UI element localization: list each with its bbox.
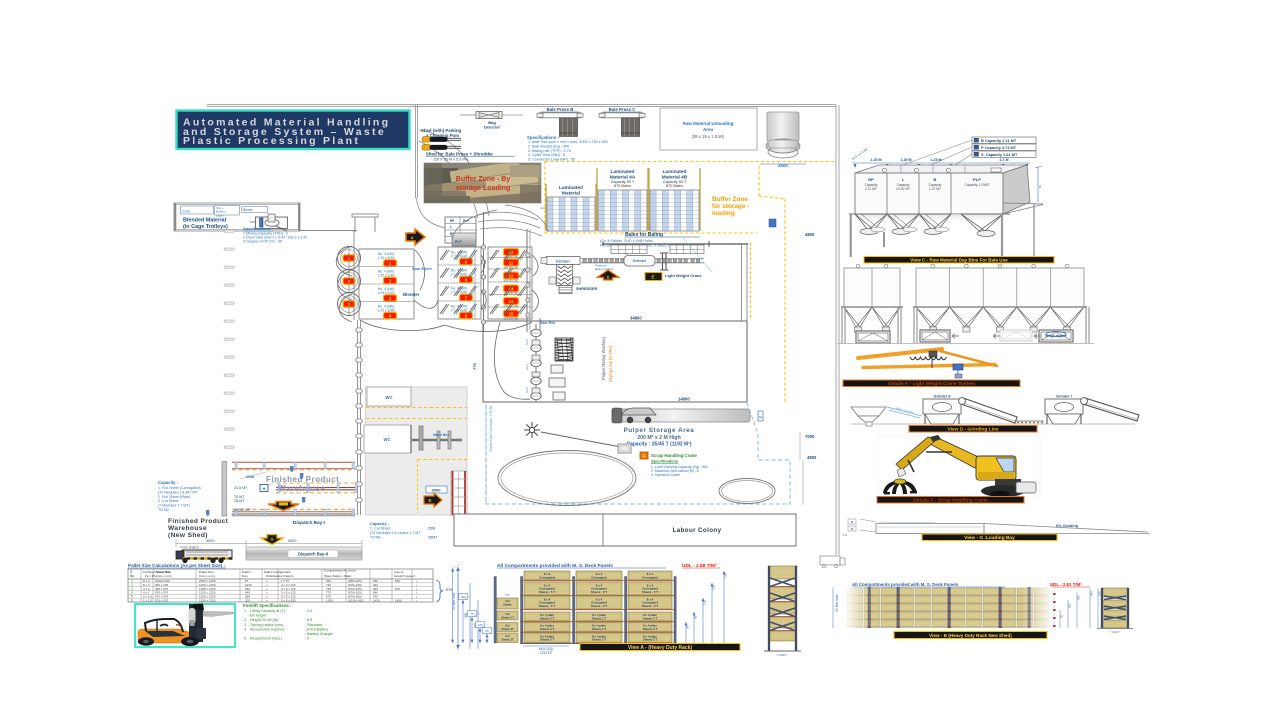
svg-text:2.: 2. xyxy=(244,618,247,622)
svg-text:34800: 34800 xyxy=(630,316,642,321)
svg-text:(1015+165): (1015+165) xyxy=(348,598,363,602)
svg-text:PLP: PLP xyxy=(455,240,462,244)
svg-text:Sheet Out Conveyor 100 M: Sheet Out Conveyor 100 M xyxy=(489,406,493,452)
svg-text:Sheets - 5 T: Sheets - 5 T xyxy=(591,590,607,594)
svg-text:for storage -: for storage - xyxy=(712,203,749,210)
svg-text:11: 11 xyxy=(509,260,514,265)
svg-text:Turning radius (mm): Turning radius (mm) xyxy=(250,623,283,627)
svg-text:All Compartments provided with: All Compartments provided with M. S. Dec… xyxy=(852,582,959,587)
svg-text:350: 350 xyxy=(1076,595,1080,600)
svg-text:Core: Core xyxy=(182,210,190,214)
svg-text:View C - Raw Material Day Bins: View C - Raw Material Day Bins For Bale … xyxy=(910,257,1008,262)
svg-text:Corrugated: Corrugated xyxy=(642,575,658,579)
svg-text:1.2: 1.2 xyxy=(843,533,848,537)
svg-text:Sheets 2T: Sheets 2T xyxy=(501,627,514,631)
svg-text:storage Loading: storage Loading xyxy=(456,185,510,192)
svg-text:Material: Material xyxy=(562,191,580,197)
svg-text:Detector: Detector xyxy=(484,125,501,130)
svg-text:775: 775 xyxy=(472,363,477,370)
svg-text:Sheets - 5 T: Sheets - 5 T xyxy=(591,604,607,608)
svg-text:PLP: PLP xyxy=(973,177,981,182)
svg-text:Lifting Capacity at (T): Lifting Capacity at (T) xyxy=(250,609,285,613)
svg-text:5 x 5 x 203: 5 x 5 x 203 xyxy=(281,598,296,602)
svg-text:75: 75 xyxy=(471,612,475,616)
svg-text:View - B (Heavy Duty Rack New: View - B (Heavy Duty Rack New Shed) xyxy=(929,633,1012,638)
svg-text:50 feet side: 50 feet side xyxy=(835,594,839,612)
svg-text:195: 195 xyxy=(712,585,716,590)
svg-text:: 5: : 5 xyxy=(305,637,309,641)
svg-text:Sheet Stack + Pallet: Sheet Stack + Pallet xyxy=(324,574,351,578)
svg-text:19.20 MT: 19.20 MT xyxy=(896,187,910,191)
svg-text:1.25 M: 1.25 M xyxy=(931,158,942,162)
svg-text:kW 80 (M): kW 80 (M) xyxy=(504,279,519,283)
svg-text:4500: 4500 xyxy=(206,539,214,543)
svg-text:: 5.5: : 5.5 xyxy=(305,618,312,622)
svg-text:FL x FS: FL x FS xyxy=(145,574,156,578)
svg-text:Name Box: Name Box xyxy=(433,433,449,437)
svg-text:Details F - Scrap Handling Cra: Details F - Scrap Handling Crane xyxy=(913,497,988,503)
svg-text:Sheets 2 T: Sheets 2 T xyxy=(643,616,658,620)
svg-text:Dispatch Bay-II: Dispatch Bay-II xyxy=(298,552,328,557)
svg-text:View - G :Loading Bay: View - G :Loading Bay xyxy=(964,535,1015,541)
svg-text:Sheets 2 T: Sheets 2 T xyxy=(592,616,607,620)
svg-text:Grinder I: Grinder I xyxy=(1056,395,1072,399)
svg-text:Buffer Zone: Buffer Zone xyxy=(712,196,748,203)
svg-text:D: D xyxy=(607,275,610,279)
svg-text:RP: RP xyxy=(868,177,874,182)
svg-text:Warehouse: Warehouse xyxy=(278,484,325,493)
svg-text:4800: 4800 xyxy=(807,455,817,460)
svg-text:Details K - Light Weight Crane: Details K - Light Weight Crane System xyxy=(888,381,975,387)
svg-text:Capacity 1.19MT: Capacity 1.19MT xyxy=(965,183,990,187)
svg-text:(in Cage Trolleys): (in Cage Trolleys) xyxy=(183,224,228,230)
svg-text:Scrap Handling Crane: Scrap Handling Crane xyxy=(651,453,697,458)
svg-text:Laminated: Laminated xyxy=(559,185,583,191)
svg-text:400: 400 xyxy=(1089,591,1093,596)
svg-text:Sheets: Sheets xyxy=(503,602,512,606)
svg-text:2700 FC: 2700 FC xyxy=(540,651,553,655)
svg-text:5.: 5. xyxy=(244,637,247,641)
svg-text:Specifications :: Specifications : xyxy=(243,226,273,231)
svg-text:Pulper Storage Area: Pulper Storage Area xyxy=(624,427,695,434)
svg-text:A: A xyxy=(411,235,414,240)
svg-text:Labour Colony: Labour Colony xyxy=(673,527,722,534)
svg-text:Dispatch Bay-I: Dispatch Bay-I xyxy=(293,520,325,525)
svg-text:2.11 MT: 2.11 MT xyxy=(865,187,877,191)
svg-text:loading: loading xyxy=(712,210,735,217)
svg-text:Nos.: Nos. xyxy=(242,574,249,578)
svg-text:1.: 1. xyxy=(244,609,247,613)
svg-text:G: G xyxy=(271,538,274,542)
svg-text:Binder: Binder xyxy=(243,208,254,212)
svg-text:Pulper Rating Washing: Pulper Rating Washing xyxy=(601,337,606,380)
svg-text:35MT: 35MT xyxy=(428,536,438,540)
svg-text:: Standard: : Standard xyxy=(305,623,322,627)
svg-text:M: M xyxy=(759,416,762,420)
svg-text:Sheets 2 T: Sheets 2 T xyxy=(592,627,607,631)
svg-text:Cut: Cut xyxy=(505,624,509,628)
svg-text:Cut: Cut xyxy=(505,612,509,616)
svg-text:2. Full Sheet (Plain): 2. Full Sheet (Plain) xyxy=(158,495,190,499)
svg-text:Blender: Blender xyxy=(403,292,420,297)
svg-text:No.4: No.4 xyxy=(525,387,529,393)
svg-text:TOTAL: TOTAL xyxy=(370,536,382,540)
svg-text:70 MT: 70 MT xyxy=(234,495,245,499)
svg-text:P Capacity 3.74 MT: P Capacity 3.74 MT xyxy=(981,145,1017,150)
svg-text:No.4: No.4 xyxy=(525,339,529,345)
svg-text:WC: WC xyxy=(384,437,391,442)
svg-text:240: 240 xyxy=(1097,591,1101,596)
svg-text:Laminated: Laminated xyxy=(611,169,635,175)
svg-text:870 Bales: 870 Bales xyxy=(614,184,631,188)
svg-text:16 MT: 16 MT xyxy=(234,499,245,503)
svg-text:Sheets - 5 T: Sheets - 5 T xyxy=(539,590,555,594)
svg-text:Cut: Cut xyxy=(505,634,509,638)
svg-text:Drying Line [5 TPH]: Drying Line [5 TPH] xyxy=(608,346,613,382)
svg-text:200 M² x 2 M High: 200 M² x 2 M High xyxy=(637,435,681,441)
svg-text:Actual Proposed: Actual Proposed xyxy=(394,574,415,578)
svg-text:Specifications: Specifications xyxy=(651,459,679,464)
svg-text:S. Capacity 1.01 MT: S. Capacity 1.01 MT xyxy=(981,152,1018,157)
svg-text:(mm x mm): (mm x mm) xyxy=(156,574,172,578)
svg-text:650: 650 xyxy=(395,579,400,583)
svg-text:4.: 4. xyxy=(244,627,247,631)
svg-text:275: 275 xyxy=(724,573,728,578)
svg-text:570 x 570: 570 x 570 xyxy=(155,598,169,602)
svg-text:3. Baling rate (TPH): 3. Baling rate (TPH) : 0.75 xyxy=(528,149,571,153)
svg-text:1430: 1430 xyxy=(373,598,380,602)
svg-text:120: 120 xyxy=(478,623,483,627)
svg-text:B: B xyxy=(934,177,937,182)
svg-text:Sheets - 5 T: Sheets - 5 T xyxy=(642,590,658,594)
svg-text:Shed for Bale Press + Shredd: Shed for Bale Press + Shredder xyxy=(426,151,494,156)
svg-text:No.: No. xyxy=(130,574,135,578)
svg-text:E: E xyxy=(428,498,431,503)
svg-text:15: 15 xyxy=(509,311,514,316)
svg-text:7 1110 7: 7 1110 7 xyxy=(1110,630,1121,634)
svg-text:Sam Mixer: Sam Mixer xyxy=(412,266,432,271)
svg-text:1430: 1430 xyxy=(395,598,402,602)
svg-text:Capacity : 35/45 T (1192 M³): Capacity : 35/45 T (1192 M³) xyxy=(626,442,691,448)
svg-text:Grinder: Grinder xyxy=(633,259,647,263)
svg-text:(38 x 19 x 1.5 M²): (38 x 19 x 1.5 M²) xyxy=(692,134,725,139)
svg-text:SHREDDER: SHREDDER xyxy=(576,287,598,291)
svg-text:Sheets 2 T: Sheets 2 T xyxy=(643,638,658,642)
svg-text:Sheets 2T: Sheets 2T xyxy=(501,637,514,641)
svg-text:Height Of Lift (M): Height Of Lift (M) xyxy=(250,618,278,622)
svg-text:Sheets 2 T: Sheets 2 T xyxy=(501,615,514,619)
svg-text:2.7 M: 2.7 M xyxy=(1000,158,1009,162)
svg-text:Finished Product: Finished Product xyxy=(168,518,229,525)
svg-text:2. Bale Weight (Kg): 2. Bale Weight (Kg) : 400 xyxy=(528,144,569,148)
svg-text:Laminated: Laminated xyxy=(663,169,687,175)
svg-text:85: 85 xyxy=(694,615,698,619)
svg-text:UDL - 2.81 T/M²: UDL - 2.81 T/M² xyxy=(1050,582,1082,587)
svg-text:Requirement (Nos.): Requirement (Nos.) xyxy=(250,637,282,641)
svg-text:Blended Material: Blended Material xyxy=(183,218,227,224)
svg-text:35: 35 xyxy=(686,625,690,629)
svg-text:Sheets 2 T: Sheets 2 T xyxy=(540,627,555,631)
svg-text:Plastic Processing Plant: Plastic Processing Plant xyxy=(183,135,360,147)
svg-text:kW 80 (M): kW 80 (M) xyxy=(504,317,519,321)
svg-text:Pallet Size Calculations (As p: Pallet Size Calculations (As per Sheet S… xyxy=(128,563,225,568)
svg-text:3.: 3. xyxy=(244,623,247,627)
svg-text:870 Bales: 870 Bales xyxy=(666,184,683,188)
svg-text:(72 Modules x 5 Layers x 7 MT: (72 Modules x 5 Layers x 7 MT xyxy=(370,531,421,535)
svg-text:Corrugated: Corrugated xyxy=(591,575,607,579)
svg-text:1 x 1.5: 1 x 1.5 xyxy=(143,598,152,602)
svg-text:12: 12 xyxy=(509,273,514,278)
svg-text:6: 6 xyxy=(131,598,133,602)
svg-text:E: E xyxy=(651,275,654,280)
svg-text:1250 x 1250: 1250 x 1250 xyxy=(199,598,216,602)
svg-text:: Extra Battery: : Extra Battery xyxy=(305,627,329,631)
svg-text:7000: 7000 xyxy=(805,434,815,439)
svg-text:Truck (trailer) :: Truck (trailer) : xyxy=(180,546,201,550)
svg-text:Buffer Zone - By: Buffer Zone - By xyxy=(456,176,511,183)
svg-text:180: 180 xyxy=(461,595,466,599)
svg-text:1.25 M: 1.25 M xyxy=(871,158,882,162)
svg-text:14: 14 xyxy=(509,299,514,304)
svg-text:3. Hydraulic Crane: 3. Hydraulic Crane xyxy=(651,473,680,477)
svg-text:(26 X 20 M x 5.5 M²): (26 X 20 M x 5.5 M²) xyxy=(434,157,469,161)
svg-text:Capacity :: Capacity : xyxy=(370,521,389,526)
svg-text:Corrugated: Corrugated xyxy=(539,575,555,579)
svg-text:Sheets - 5 T: Sheets - 5 T xyxy=(642,604,658,608)
svg-text:7 1136 7: 7 1136 7 xyxy=(776,653,788,657)
svg-text:Capacity :: Capacity : xyxy=(158,480,178,485)
svg-text:Bale Press B: Bale Press B xyxy=(547,107,574,112)
svg-text:Sheets 2 T: Sheets 2 T xyxy=(592,638,607,642)
svg-text:TOTAL: TOTAL xyxy=(158,508,170,512)
svg-text:1. Cut Sheet: 1. Cut Sheet xyxy=(370,527,391,531)
svg-text:H: H xyxy=(263,486,266,491)
svg-text:full height: full height xyxy=(250,614,266,618)
svg-text:: 3.0: : 3.0 xyxy=(305,609,312,613)
svg-text:1. Bale Size (mm x mm x mm):: 1. Bale Size (mm x mm x mm): 4000 x 750 … xyxy=(528,140,608,144)
svg-text:4. Cycle Time (Min): 4. Cycle Time (Min) : 5 xyxy=(528,153,565,157)
svg-text:Warehouse: Warehouse xyxy=(168,525,207,532)
svg-text:Sheets - 5 T: Sheets - 5 T xyxy=(539,604,555,608)
svg-text:Grinder: Grinder xyxy=(556,259,571,264)
svg-text:(On 4 Pallets. 2HD x (NB Palle: (On 4 Pallets. 2HD x (NB Pallet xyxy=(600,239,654,243)
svg-text:WC: WC xyxy=(386,395,393,400)
svg-text:14800: 14800 xyxy=(678,397,690,402)
svg-text:Raw Material Unloading: Raw Material Unloading xyxy=(683,121,734,126)
svg-text:Cut: Cut xyxy=(505,599,509,603)
svg-text:35M: 35M xyxy=(428,527,435,531)
svg-text:250: 250 xyxy=(1067,603,1071,608)
svg-text:203: 203 xyxy=(245,598,250,602)
svg-text:975: 975 xyxy=(395,587,400,591)
svg-text:F: F xyxy=(643,454,646,459)
svg-text:(New Shed): (New Shed) xyxy=(168,532,208,539)
svg-text:1.25 M: 1.25 M xyxy=(901,158,912,162)
svg-text:Accessories required: Accessories required xyxy=(250,627,284,631)
svg-text:Sheets 2 T: Sheets 2 T xyxy=(643,627,658,631)
svg-text:50: 50 xyxy=(486,629,490,633)
svg-text:Light Weight Crane: Light Weight Crane xyxy=(665,273,702,278)
svg-text:View D - Grinding Line: View D - Grinding Line xyxy=(947,426,998,432)
svg-text:9000: 9000 xyxy=(288,539,296,543)
svg-text:24.5 MT: 24.5 MT xyxy=(234,486,248,490)
svg-text:Bale Loading: Bale Loading xyxy=(595,267,613,271)
svg-text:Forklift Specifications :: Forklift Specifications : xyxy=(243,603,292,608)
svg-text:2. Cut Sheet: 2. Cut Sheet xyxy=(158,499,179,503)
svg-text:Sheets 2 T: Sheets 2 T xyxy=(540,638,555,642)
svg-text:3 Degree of Fill (%): 3 Degree of Fill (%) : 65 xyxy=(243,240,282,244)
svg-text:Area: Area xyxy=(703,127,714,132)
svg-text:Sam Res: Sam Res xyxy=(540,321,555,325)
svg-text:35: 35 xyxy=(1059,614,1063,618)
svg-text:L: L xyxy=(450,225,452,229)
svg-text:(? Modules x 7 MT): (? Modules x 7 MT) xyxy=(158,504,190,508)
svg-text:975: 975 xyxy=(446,588,452,592)
svg-text:1. Full Sheet (Corrugated): 1. Full Sheet (Corrugated) xyxy=(158,486,201,490)
svg-text:4800: 4800 xyxy=(805,232,815,237)
svg-text:115: 115 xyxy=(703,600,707,605)
svg-text:1.27 MT: 1.27 MT xyxy=(929,187,941,191)
svg-text:8% Grading: 8% Grading xyxy=(1056,523,1079,528)
svg-text:1190: 1190 xyxy=(326,598,333,602)
svg-text:(72 Modules x 5,987 MT: (72 Modules x 5,987 MT xyxy=(158,490,199,494)
svg-text:Pelletisation Pattern: Pelletisation Pattern xyxy=(266,574,294,578)
svg-text:No.4: No.4 xyxy=(525,364,529,370)
svg-text:Compartment Ht. (mm): Compartment Ht. (mm) xyxy=(324,569,356,573)
svg-text:(23.60 MT: (23.60 MT xyxy=(234,508,252,512)
svg-text:Sheets 2 T: Sheets 2 T xyxy=(540,616,555,620)
svg-text:View A - (Heavy Duty Rack): View A - (Heavy Duty Rack) xyxy=(628,645,693,651)
svg-text:B Capacity 2.11 MT: B Capacity 2.11 MT xyxy=(981,138,1017,143)
svg-text:: Battery Charger: : Battery Charger xyxy=(305,632,334,636)
svg-text:Cut: Cut xyxy=(505,593,510,597)
svg-text:Grinder II: Grinder II xyxy=(934,395,951,399)
svg-text:(mm x mm): (mm x mm) xyxy=(199,574,215,578)
svg-text:Bale Press C: Bale Press C xyxy=(609,107,637,112)
svg-text:3000: 3000 xyxy=(432,488,442,493)
